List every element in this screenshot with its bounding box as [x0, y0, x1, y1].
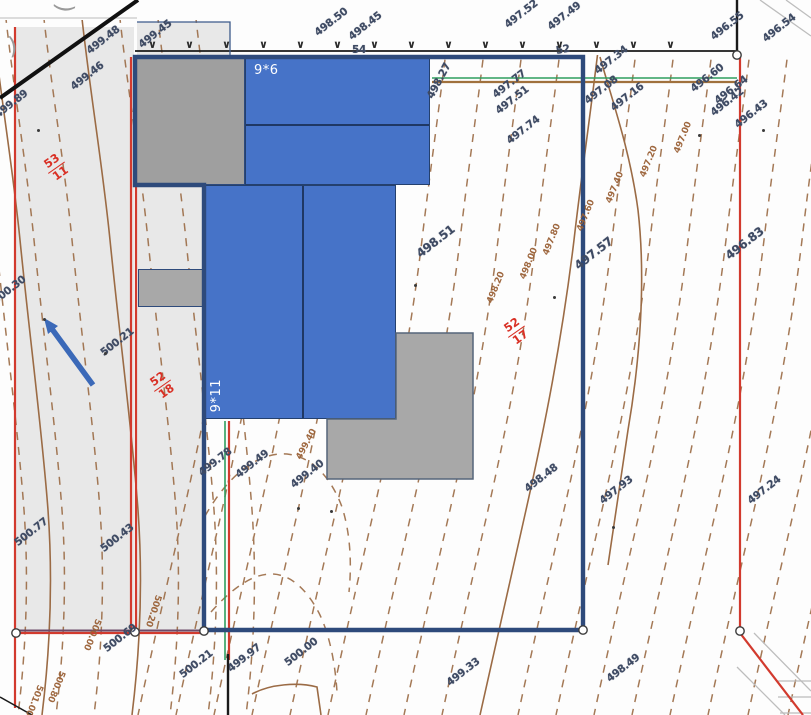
fence-mark-icon: ∨ [370, 38, 379, 51]
site-plan-sheet: 9*6 9*11 [0, 0, 811, 715]
fence-mark-icon: ∨ [555, 38, 564, 51]
survey-point-dot [43, 318, 46, 321]
fence-mark-icon: ∨ [333, 38, 342, 51]
survey-point-dot [330, 510, 333, 513]
fence-mark-icon: ∨ [259, 38, 268, 51]
survey-point-dot [698, 134, 701, 137]
fence-mark-icon: ∨ [629, 38, 638, 51]
black-survey-lines [0, 0, 738, 715]
fence-mark-icon: ∨ [481, 38, 490, 51]
survey-point-dot [553, 296, 556, 299]
survey-point-dot [762, 129, 765, 132]
fence-mark-icon: ∨ [518, 38, 527, 51]
survey-point-dot [297, 507, 300, 510]
linework-layer [0, 0, 811, 715]
fence-mark-icon: ∨ [444, 38, 453, 51]
fence-mark-icon: ∨ [148, 38, 157, 51]
utility-lines-green [225, 78, 737, 660]
fence-mark-icon: ∨ [222, 38, 231, 51]
fence-mark-icon: ∨ [296, 38, 305, 51]
survey-point-dot [104, 352, 107, 355]
fence-mark-icon: ∨ [592, 38, 601, 51]
survey-point-dot [37, 129, 40, 132]
survey-point-dot [612, 526, 615, 529]
fence-mark-icon: ∨ [185, 38, 194, 51]
fence-mark-icon: ∨ [407, 38, 416, 51]
survey-point-dot [414, 284, 417, 287]
north-arrow [44, 318, 93, 385]
spot-elevation-label: 54 [352, 44, 366, 56]
fence-mark-icon: ∨ [666, 38, 675, 51]
